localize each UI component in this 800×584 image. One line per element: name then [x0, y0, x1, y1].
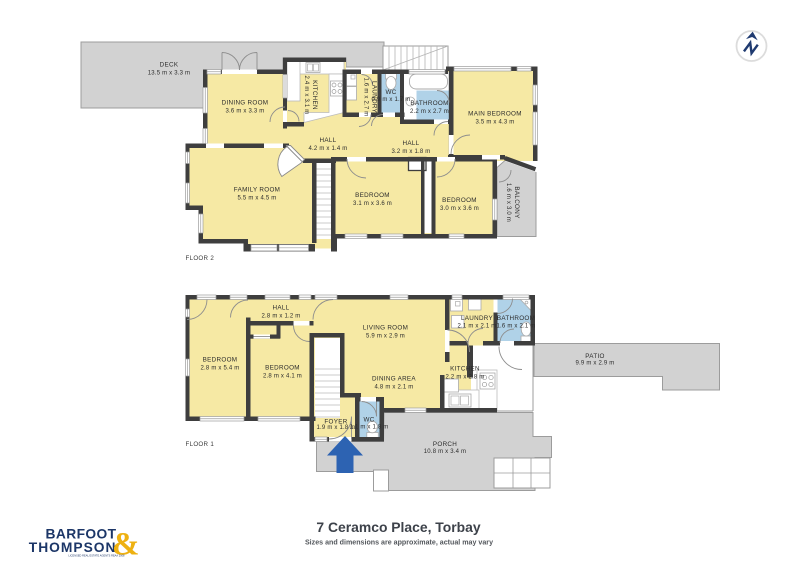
svg-text:BEDROOM: BEDROOM	[442, 197, 477, 204]
svg-text:FLOOR 2: FLOOR 2	[186, 255, 215, 262]
svg-text:2.2 m x 2.7 m: 2.2 m x 2.7 m	[410, 109, 449, 115]
svg-text:WC: WC	[385, 89, 396, 96]
svg-text:HALL: HALL	[403, 140, 420, 147]
svg-text:1.1 m x 1.8 m: 1.1 m x 1.8 m	[350, 425, 389, 431]
svg-text:3.0 m x 3.6 m: 3.0 m x 3.6 m	[440, 206, 479, 212]
svg-text:DINING ROOM: DINING ROOM	[222, 100, 269, 107]
svg-text:KITCHEN: KITCHEN	[450, 366, 480, 373]
svg-text:2.8 m x 4.1 m: 2.8 m x 4.1 m	[263, 374, 302, 380]
svg-text:9.9 m x 2.9 m: 9.9 m x 2.9 m	[576, 361, 615, 367]
svg-text:2.2 m x 2.8 m: 2.2 m x 2.8 m	[446, 375, 485, 381]
svg-text:5.5 m x 4.5 m: 5.5 m x 4.5 m	[238, 196, 277, 202]
svg-text:PATIO: PATIO	[585, 353, 604, 360]
svg-text:MAIN BEDROOM: MAIN BEDROOM	[468, 111, 522, 118]
svg-text:DINING AREA: DINING AREA	[372, 376, 416, 383]
svg-text:7 Ceramco Place, Torbay: 7 Ceramco Place, Torbay	[316, 519, 480, 535]
svg-text:BATHROOM: BATHROOM	[410, 100, 448, 107]
svg-text:2.1 m x 2.1 m: 2.1 m x 2.1 m	[458, 324, 497, 330]
svg-text:Sizes and dimensions are appro: Sizes and dimensions are approximate, ac…	[305, 539, 493, 547]
svg-text:1.6 m x 2.1 m: 1.6 m x 2.1 m	[497, 324, 536, 330]
svg-text:0.9 m x 1.7 m: 0.9 m x 1.7 m	[372, 97, 411, 103]
svg-text:3.5 m x 4.3 m: 3.5 m x 4.3 m	[476, 120, 515, 126]
svg-text:LIVING ROOM: LIVING ROOM	[363, 325, 408, 332]
svg-text:4.2 m x 1.4 m: 4.2 m x 1.4 m	[309, 146, 348, 152]
svg-text:3.2 m x 1.8 m: 3.2 m x 1.8 m	[392, 149, 431, 155]
svg-text:FAMILY ROOM: FAMILY ROOM	[234, 187, 280, 194]
svg-text:4.8 m x 2.1 m: 4.8 m x 2.1 m	[375, 385, 414, 391]
svg-text:PORCH: PORCH	[433, 441, 457, 448]
svg-text:LAUNDRY: LAUNDRY	[461, 315, 494, 322]
svg-text:10.8 m x 3.4 m: 10.8 m x 3.4 m	[424, 449, 466, 455]
svg-text:FLOOR 1: FLOOR 1	[186, 441, 215, 448]
svg-text:BEDROOM: BEDROOM	[203, 357, 238, 364]
svg-text:HALL: HALL	[320, 137, 337, 144]
svg-text:BATHROOM: BATHROOM	[497, 315, 535, 322]
svg-text:3.6 m x 3.3 m: 3.6 m x 3.3 m	[226, 109, 265, 115]
svg-text:THOMPSON: THOMPSON	[29, 540, 117, 555]
svg-text:2.8 m x 1.2 m: 2.8 m x 1.2 m	[262, 314, 301, 320]
svg-text:HALL: HALL	[273, 305, 290, 312]
svg-text:LICENSED REAL ESTATE AGENTS RE: LICENSED REAL ESTATE AGENTS REAA 2008	[69, 555, 126, 558]
svg-text:WC: WC	[363, 417, 374, 424]
svg-text:2.8 m x 5.4 m: 2.8 m x 5.4 m	[201, 366, 240, 372]
svg-text:BEDROOM: BEDROOM	[355, 192, 390, 199]
svg-text:3.1 m x 3.6 m: 3.1 m x 3.6 m	[353, 201, 392, 207]
svg-text:BEDROOM: BEDROOM	[265, 365, 300, 372]
svg-text:13.5 m x 3.3 m: 13.5 m x 3.3 m	[148, 71, 190, 77]
svg-text:5.9 m x 2.9 m: 5.9 m x 2.9 m	[366, 334, 405, 340]
svg-text:DECK: DECK	[160, 62, 179, 69]
